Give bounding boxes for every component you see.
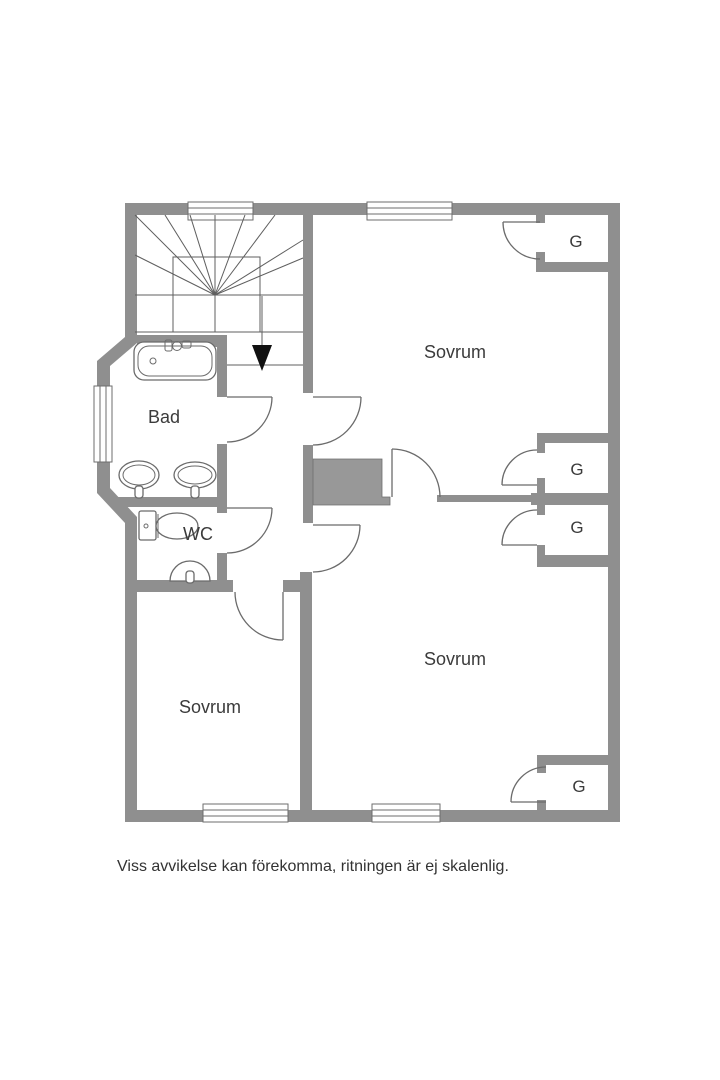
- interior-walls: [112, 215, 608, 810]
- door-bedroom-bottom-left: [235, 592, 283, 640]
- wc-corner-sink: [170, 561, 210, 583]
- door-closet-top-right: [503, 222, 540, 259]
- room-label-bedroom-bottom-left: Sovrum: [179, 697, 241, 717]
- door-bedroom-top-right: [313, 397, 361, 445]
- closet-label-middle-lower: G: [570, 518, 583, 537]
- closet-label-middle-upper: G: [570, 460, 583, 479]
- chimney-shaft: [313, 459, 390, 505]
- closet-label-bottom-right: G: [572, 777, 585, 796]
- room-label-bathroom: Bad: [148, 407, 180, 427]
- window-bathroom-bay: [94, 386, 112, 462]
- window-bedroom-bottom-left: [203, 804, 288, 822]
- door-closet-middle-upper: [502, 450, 537, 485]
- door-bedroom-bottom-right: [313, 525, 360, 572]
- bathtub: [134, 340, 216, 380]
- room-label-bedroom-bottom-right: Sovrum: [424, 649, 486, 669]
- bathroom-sinks: [119, 461, 216, 498]
- window-bedroom-top: [367, 202, 452, 220]
- door-between-right-bedrooms: [392, 449, 440, 497]
- disclaimer-text: Viss avvikelse kan förekomma, ritningen …: [117, 858, 509, 875]
- floor-plan-canvas: Sovrum Sovrum Sovrum Bad WC G G G G Viss…: [0, 0, 720, 1080]
- sink-right: [174, 462, 216, 498]
- labels: Sovrum Sovrum Sovrum Bad WC G G G G Viss…: [117, 232, 586, 875]
- room-label-wc: WC: [183, 524, 213, 544]
- window-bedroom-bottom-right: [372, 804, 440, 822]
- sink-left: [119, 461, 159, 498]
- doors: [227, 222, 546, 802]
- door-wc: [227, 508, 272, 553]
- stairs-direction-arrow: [252, 296, 272, 371]
- closet-label-top-right: G: [569, 232, 582, 251]
- window-stairs-top: [188, 202, 253, 220]
- floor-plan-page: Sovrum Sovrum Sovrum Bad WC G G G G Viss…: [0, 0, 720, 1080]
- door-bathroom: [227, 397, 272, 442]
- door-closet-middle-lower: [502, 510, 537, 545]
- room-label-bedroom-top-right: Sovrum: [424, 342, 486, 362]
